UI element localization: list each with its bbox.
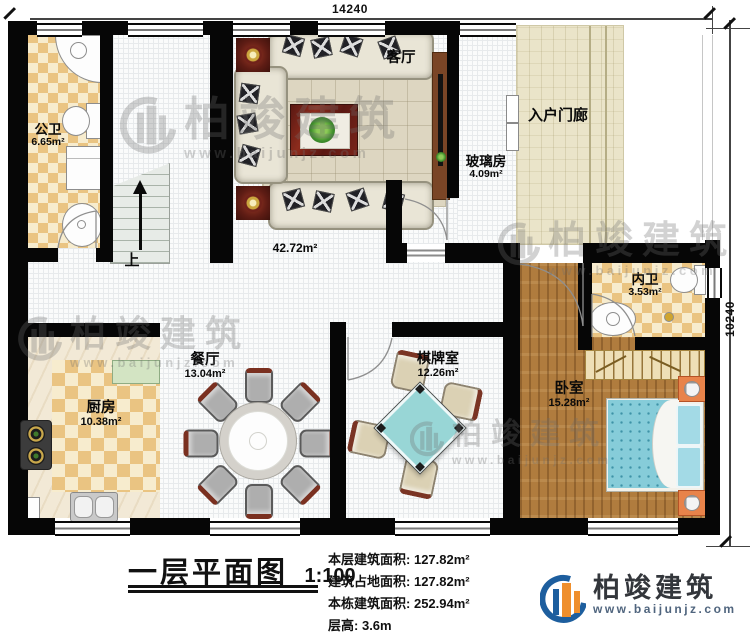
entry-porch-floor [516, 25, 624, 245]
bath-cabinet-icon [66, 146, 102, 190]
cased-opening [407, 244, 445, 262]
window [233, 23, 290, 37]
sink-basin [74, 496, 93, 518]
shower-drain-icon [70, 42, 87, 59]
lazy-susan-icon [249, 432, 267, 450]
room-label-game-room: 棋牌室 12.26m² [404, 351, 472, 379]
room-label-entry-porch: 入户门廊 [520, 108, 596, 125]
lamp-icon [244, 194, 262, 212]
stat-row: 层高: 3.6m [328, 615, 470, 637]
logo-icon [540, 574, 586, 630]
burner-icon [27, 447, 45, 465]
window [128, 23, 203, 37]
plant-icon [309, 117, 335, 143]
ensuite-drain-icon [606, 312, 620, 326]
lamp-icon [244, 46, 262, 64]
cushion [239, 83, 260, 104]
cushion [312, 190, 335, 213]
kitchen-sink-icon [70, 492, 118, 522]
end-table [236, 186, 270, 220]
entry-door-leaf [506, 123, 519, 151]
room-label-kitchen: 厨房 10.38m² [68, 400, 134, 429]
room-label-glass-room: 玻璃房 4.09m² [452, 154, 520, 181]
plan-title: 一层平面图 [128, 557, 288, 589]
pillow-icon [676, 446, 702, 488]
stat-row: 本栋建筑面积: 252.94m² [328, 593, 470, 615]
sink-basin [95, 496, 114, 518]
company-logo: 柏竣建筑 www.baijunjz.com [540, 574, 737, 630]
living-area-label: 42.72m² [266, 242, 324, 255]
dining-chair [184, 430, 219, 458]
small-plant-icon [436, 152, 446, 162]
room-label-bedroom: 卧室 15.28m² [538, 381, 600, 410]
window [210, 521, 300, 536]
dining-chair [245, 368, 273, 403]
pillow-icon [676, 404, 702, 446]
logo-text: 柏竣建筑 [593, 574, 737, 602]
top-dimension-text: 14240 [332, 2, 368, 16]
porch-line [589, 26, 591, 244]
burner-icon [27, 425, 45, 443]
end-table [236, 38, 270, 72]
right-dimension-text: 10240 [723, 301, 737, 337]
cutting-board-icon [112, 360, 160, 384]
dining-chair [245, 484, 273, 519]
glass-room-window [460, 23, 516, 37]
window [318, 23, 385, 37]
stairs-up-label: 上 [116, 253, 148, 270]
right-dimension-line [729, 20, 731, 546]
window [588, 521, 678, 536]
cushion [236, 112, 258, 134]
stove-icon [20, 420, 52, 470]
porch-line [605, 26, 607, 244]
room-label-ensuite-bath: 内卫 3.53m² [618, 272, 672, 299]
entry-door-leaf [506, 95, 519, 123]
window [707, 268, 722, 298]
logo-website: www.baijunjz.com [593, 602, 737, 616]
ensuite-toilet-icon [670, 267, 698, 293]
room-label-dining: 餐厅 13.04m² [176, 352, 234, 381]
area-stats: 本层建筑面积: 127.82m² 建筑占地面积: 127.82m² 本栋建筑面积… [328, 549, 470, 637]
nightstand [678, 490, 706, 516]
drawing-title: 一层平面图 1:100 [128, 549, 356, 591]
cushion [310, 36, 333, 59]
extension-line [706, 28, 750, 29]
top-dimension-line [30, 18, 712, 20]
window [37, 23, 82, 37]
site-boundary-line [702, 35, 713, 240]
room-label-living: 客厅 [378, 50, 424, 66]
stat-row: 本层建筑面积: 127.82m² [328, 549, 470, 571]
basin-drain-icon [77, 220, 86, 229]
stairs-up-arrow-stem [139, 192, 142, 250]
extension-line [706, 546, 750, 547]
nightstand [678, 376, 706, 402]
stat-row: 建筑占地面积: 127.82m² [328, 571, 470, 593]
room-label-public-bath: 公卫 6.65m² [20, 122, 76, 149]
floor-plan: 公卫 6.65m² 客厅 42.72m² 玻璃房 4.09m² 入户门廊 内卫 … [0, 0, 750, 643]
window [395, 521, 490, 536]
dimension-tick [3, 7, 15, 19]
window [55, 521, 130, 536]
towel-hook-icon [664, 312, 674, 322]
